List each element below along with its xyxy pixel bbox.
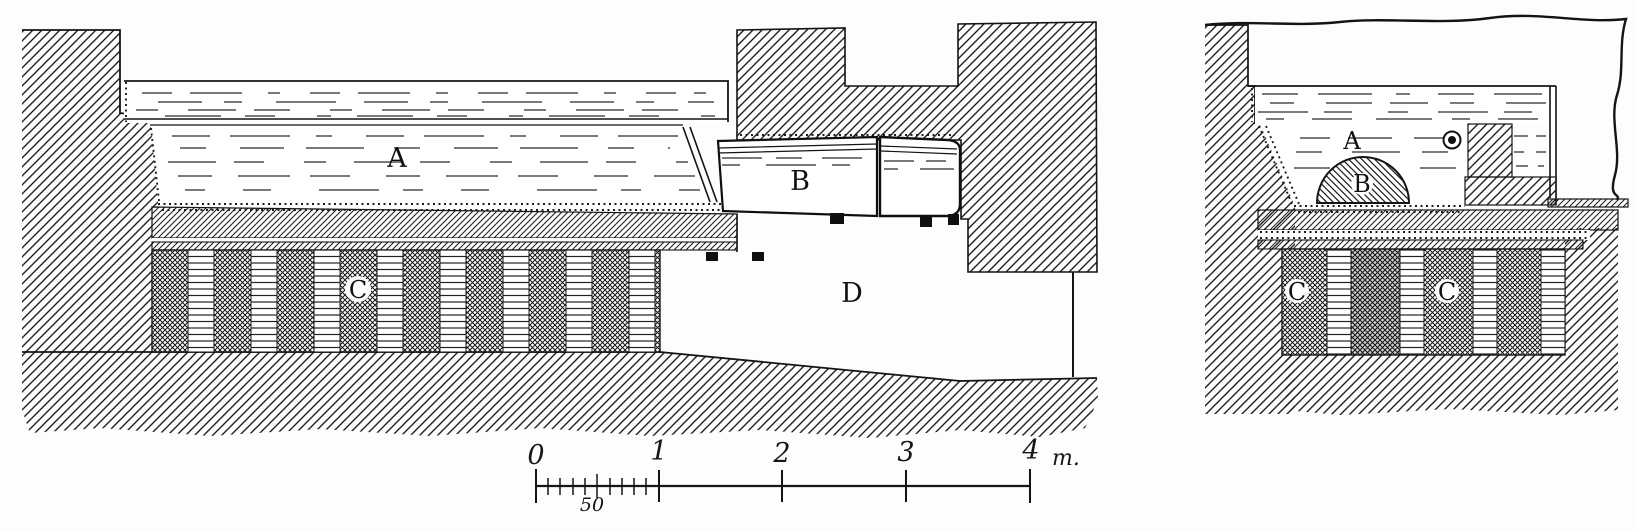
pila — [251, 250, 277, 352]
scale-tick-2: 2 — [772, 438, 790, 469]
pila — [440, 250, 466, 352]
label-furnace-d: D — [841, 278, 863, 309]
basin-a — [151, 127, 735, 210]
label-boiler-b: B — [790, 166, 810, 197]
pila — [377, 250, 403, 352]
pipe-section-core — [1448, 136, 1456, 144]
scale-bar: 0 1 2 3 4 m. 50 — [527, 435, 1079, 516]
hypocaust-pillars-right-fig — [1282, 249, 1565, 355]
upper-water-channel — [124, 81, 728, 125]
pila — [314, 250, 340, 352]
hypocaust-pillars — [152, 250, 660, 352]
pila — [1327, 249, 1351, 355]
label-hypocaust-c-left: C — [1288, 278, 1306, 306]
step-band — [1465, 177, 1556, 205]
bath-section-engraving: A B C D — [0, 0, 1635, 531]
flue-dark-block — [1351, 249, 1400, 355]
scale-half-meter-label: 50 — [580, 494, 604, 516]
right-floor-band — [1548, 199, 1628, 207]
slab-gap-right-fig — [1258, 230, 1590, 240]
slab-lower-band-right-fig — [1258, 240, 1583, 249]
pila — [1473, 249, 1497, 355]
slab-gap — [152, 238, 737, 242]
tank-foot — [830, 213, 844, 224]
tank-foot — [948, 214, 959, 225]
label-hypocaust-c-right: C — [1438, 278, 1456, 306]
scale-tick-4: 4 — [1021, 435, 1039, 466]
scale-unit-label: m. — [1052, 446, 1080, 471]
ground-mass — [22, 352, 1098, 438]
pila — [566, 250, 592, 352]
slab-foot-left — [706, 252, 718, 261]
scale-tick-0: 0 — [527, 440, 544, 471]
pila — [1541, 249, 1565, 355]
pila — [188, 250, 214, 352]
left-wall-mass — [22, 30, 158, 352]
pila — [629, 250, 655, 352]
scale-tick-1: 1 — [650, 436, 667, 467]
left-section-figure: A B C D — [22, 22, 1098, 438]
scale-tick-3: 3 — [897, 437, 914, 468]
engraving-page: A B C D — [0, 0, 1635, 531]
basin-water-area — [153, 127, 709, 202]
floor-slab-right-fig — [1258, 210, 1618, 230]
slab-foot-right — [752, 252, 764, 261]
pila — [1400, 249, 1424, 355]
label-basin-a: A — [386, 143, 407, 174]
step-block — [1468, 124, 1512, 177]
tank-foot — [920, 217, 932, 227]
right-section-figure: B A C C — [1205, 16, 1628, 415]
floor-slab — [152, 207, 737, 238]
label-hypocaust-c: C — [349, 276, 367, 304]
pila — [503, 250, 529, 352]
label-dome-b: B — [1353, 170, 1371, 198]
slab-lower-band — [152, 242, 737, 250]
label-basin-a-right: A — [1342, 127, 1361, 155]
boiler-tanks — [718, 135, 960, 227]
